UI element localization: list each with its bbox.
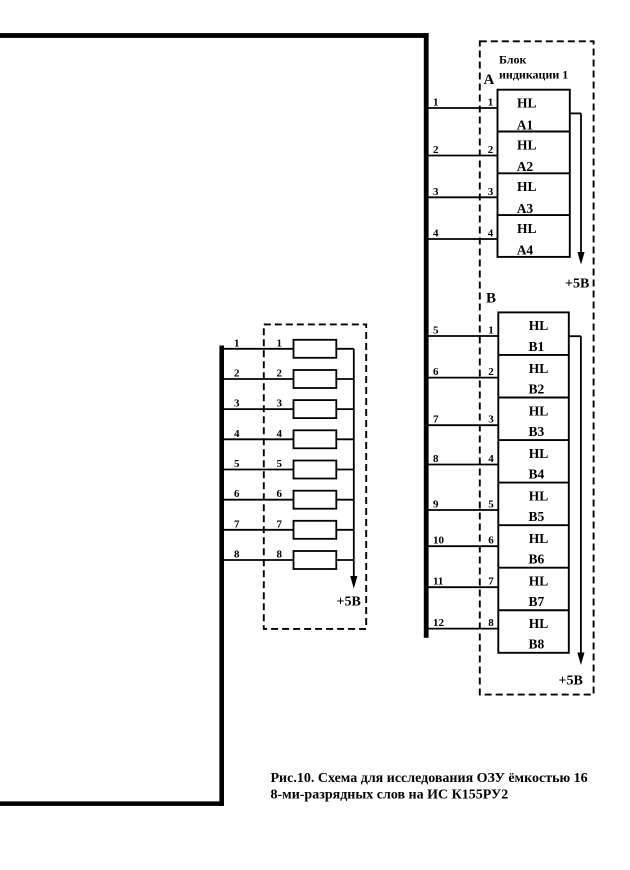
svg-text:+5B: +5B xyxy=(337,595,361,610)
svg-text:6: 6 xyxy=(488,535,494,547)
svg-text:7: 7 xyxy=(277,518,283,530)
svg-text:HL: HL xyxy=(529,446,549,461)
svg-text:B2: B2 xyxy=(529,381,545,396)
svg-text:A: A xyxy=(484,72,495,88)
svg-text:2: 2 xyxy=(277,368,283,380)
svg-text:8: 8 xyxy=(488,617,494,629)
svg-text:5: 5 xyxy=(433,325,439,337)
svg-text:2: 2 xyxy=(488,366,494,378)
svg-text:5: 5 xyxy=(234,458,240,470)
svg-text:3: 3 xyxy=(277,398,283,410)
svg-text:B7: B7 xyxy=(529,594,545,609)
svg-text:HL: HL xyxy=(517,221,537,236)
svg-text:B5: B5 xyxy=(529,509,545,524)
svg-text:5: 5 xyxy=(277,458,283,470)
svg-text:Блок: Блок xyxy=(499,53,527,67)
svg-text:4: 4 xyxy=(433,228,439,240)
svg-text:Рис.10. Схема для исследования: Рис.10. Схема для исследования ОЗУ ёмкос… xyxy=(271,771,588,786)
svg-text:4: 4 xyxy=(488,228,494,240)
svg-text:B: B xyxy=(486,290,496,306)
svg-text:индикации 1: индикации 1 xyxy=(499,68,568,82)
svg-text:4: 4 xyxy=(488,453,494,465)
svg-text:8: 8 xyxy=(433,453,439,465)
svg-text:7: 7 xyxy=(488,576,494,588)
svg-text:B8: B8 xyxy=(529,637,545,652)
svg-text:HL: HL xyxy=(529,318,549,333)
svg-text:6: 6 xyxy=(234,488,240,500)
svg-text:2: 2 xyxy=(234,368,240,380)
svg-text:HL: HL xyxy=(517,137,537,152)
svg-text:12: 12 xyxy=(433,617,445,629)
svg-text:+5B: +5B xyxy=(559,673,583,688)
svg-text:1: 1 xyxy=(488,97,494,109)
svg-text:8: 8 xyxy=(277,549,283,561)
svg-text:7: 7 xyxy=(433,414,439,426)
svg-text:1: 1 xyxy=(433,97,439,109)
svg-text:HL: HL xyxy=(517,96,537,111)
svg-text:A3: A3 xyxy=(517,201,534,216)
svg-text:9: 9 xyxy=(433,499,439,511)
svg-text:A1: A1 xyxy=(517,117,534,132)
svg-text:HL: HL xyxy=(529,403,549,418)
svg-text:6: 6 xyxy=(277,488,283,500)
svg-text:HL: HL xyxy=(529,488,549,503)
svg-text:HL: HL xyxy=(529,361,549,376)
svg-text:B1: B1 xyxy=(529,339,545,354)
svg-text:B6: B6 xyxy=(529,552,545,567)
svg-text:1: 1 xyxy=(488,325,494,337)
svg-text:8-ми-разрядных слов на ИС К155: 8-ми-разрядных слов на ИС К155РУ2 xyxy=(271,788,509,803)
svg-text:4: 4 xyxy=(234,428,240,440)
svg-text:7: 7 xyxy=(234,518,240,530)
svg-text:A2: A2 xyxy=(517,159,534,174)
svg-text:HL: HL xyxy=(529,574,549,589)
svg-text:10: 10 xyxy=(433,535,445,547)
svg-text:+5B: +5B xyxy=(565,277,589,292)
svg-text:2: 2 xyxy=(433,144,439,156)
svg-text:HL: HL xyxy=(529,531,549,546)
svg-text:11: 11 xyxy=(433,576,443,588)
svg-text:HL: HL xyxy=(529,616,549,631)
svg-text:1: 1 xyxy=(234,337,240,349)
svg-text:1: 1 xyxy=(277,337,283,349)
svg-text:A4: A4 xyxy=(517,243,534,258)
svg-text:8: 8 xyxy=(234,549,240,561)
svg-text:4: 4 xyxy=(277,428,283,440)
svg-text:B4: B4 xyxy=(529,466,545,481)
svg-text:2: 2 xyxy=(488,144,494,156)
svg-text:HL: HL xyxy=(517,179,537,194)
svg-text:6: 6 xyxy=(433,366,439,378)
svg-text:B3: B3 xyxy=(529,424,545,439)
svg-text:3: 3 xyxy=(488,414,494,426)
svg-text:5: 5 xyxy=(488,499,494,511)
svg-text:3: 3 xyxy=(234,398,240,410)
svg-text:3: 3 xyxy=(488,186,494,198)
svg-text:3: 3 xyxy=(433,186,439,198)
